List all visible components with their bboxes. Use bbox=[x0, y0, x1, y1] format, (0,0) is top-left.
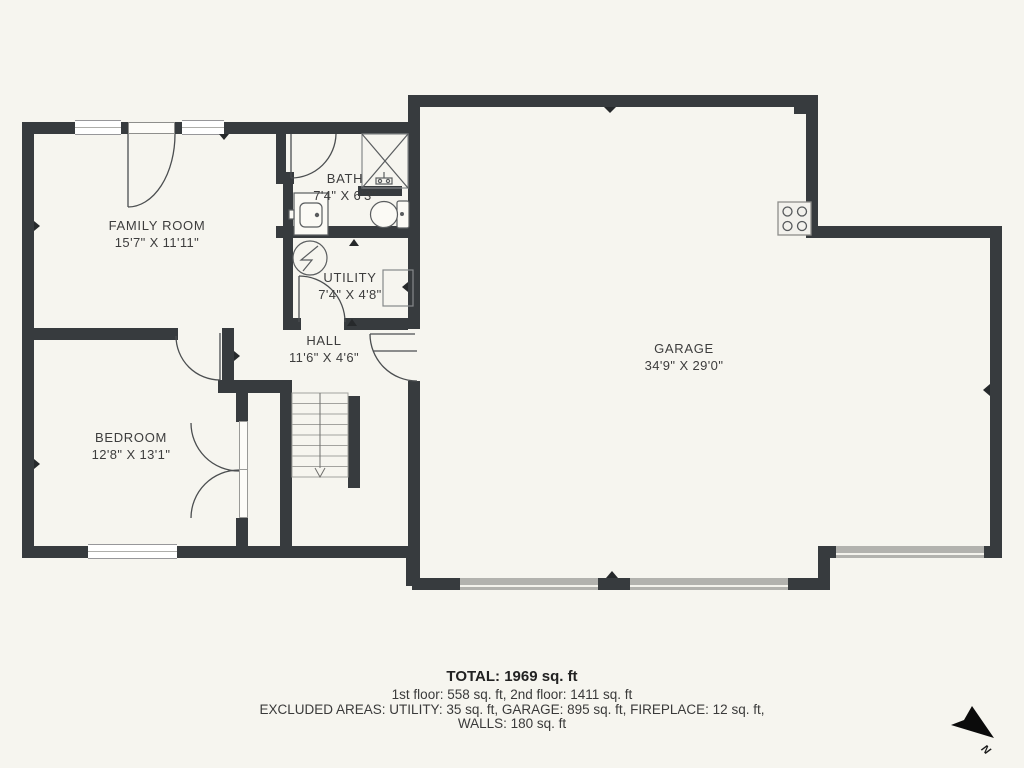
room-dims: 34'9" X 29'0" bbox=[645, 357, 724, 374]
room-name: BEDROOM bbox=[92, 429, 171, 446]
fireplace-stove-icon bbox=[778, 202, 811, 235]
room-dims: 15'7" X 11'11" bbox=[109, 234, 206, 251]
floor-plan: FAMILY ROOM 15'7" X 11'11" BATH 7'4" X 6… bbox=[0, 0, 1024, 768]
north-label: N bbox=[979, 743, 994, 756]
room-label-garage: GARAGE 34'9" X 29'0" bbox=[645, 340, 724, 374]
summary-walls: WALLS: 180 sq. ft bbox=[0, 717, 1024, 732]
appliance-icon bbox=[383, 270, 413, 306]
door-swing-hall-garage bbox=[370, 334, 417, 381]
north-arrow-icon: N bbox=[935, 690, 1010, 756]
room-label-utility: UTILITY 7'4" X 4'8" bbox=[318, 269, 381, 303]
room-label-bedroom: BEDROOM 12'8" X 13'1" bbox=[92, 429, 171, 463]
summary-excluded: EXCLUDED AREAS: UTILITY: 35 sq. ft, GARA… bbox=[0, 703, 1024, 718]
door-swing-closet bbox=[191, 423, 239, 518]
summary-total: TOTAL: 1969 sq. ft bbox=[0, 669, 1024, 685]
room-dims: 7'4" X 6'3" bbox=[313, 187, 376, 204]
room-label-hall: HALL 11'6" X 4'6" bbox=[289, 332, 359, 366]
room-dims: 7'4" X 4'8" bbox=[318, 286, 381, 303]
wall-markers bbox=[34, 107, 990, 578]
door-swing-front bbox=[128, 134, 175, 207]
room-dims: 11'6" X 4'6" bbox=[289, 349, 359, 366]
area-summary: TOTAL: 1969 sq. ft 1st floor: 558 sq. ft… bbox=[0, 669, 1024, 732]
floor-plan-page: { "plan": { "rooms": [ {"id": "family-ro… bbox=[0, 0, 1024, 768]
room-name: HALL bbox=[289, 332, 359, 349]
room-label-family-room: FAMILY ROOM 15'7" X 11'11" bbox=[109, 217, 206, 251]
door-swing-bedroom bbox=[176, 333, 220, 380]
room-name: GARAGE bbox=[645, 340, 724, 357]
room-label-bath: BATH 7'4" X 6'3" bbox=[313, 170, 376, 204]
summary-floors: 1st floor: 558 sq. ft, 2nd floor: 1411 s… bbox=[0, 688, 1024, 703]
room-dims: 12'8" X 13'1" bbox=[92, 446, 171, 463]
room-name: BATH bbox=[313, 170, 376, 187]
room-name: FAMILY ROOM bbox=[109, 217, 206, 234]
toilet-icon bbox=[371, 201, 410, 228]
room-name: UTILITY bbox=[318, 269, 381, 286]
plan-symbols bbox=[0, 0, 1024, 768]
